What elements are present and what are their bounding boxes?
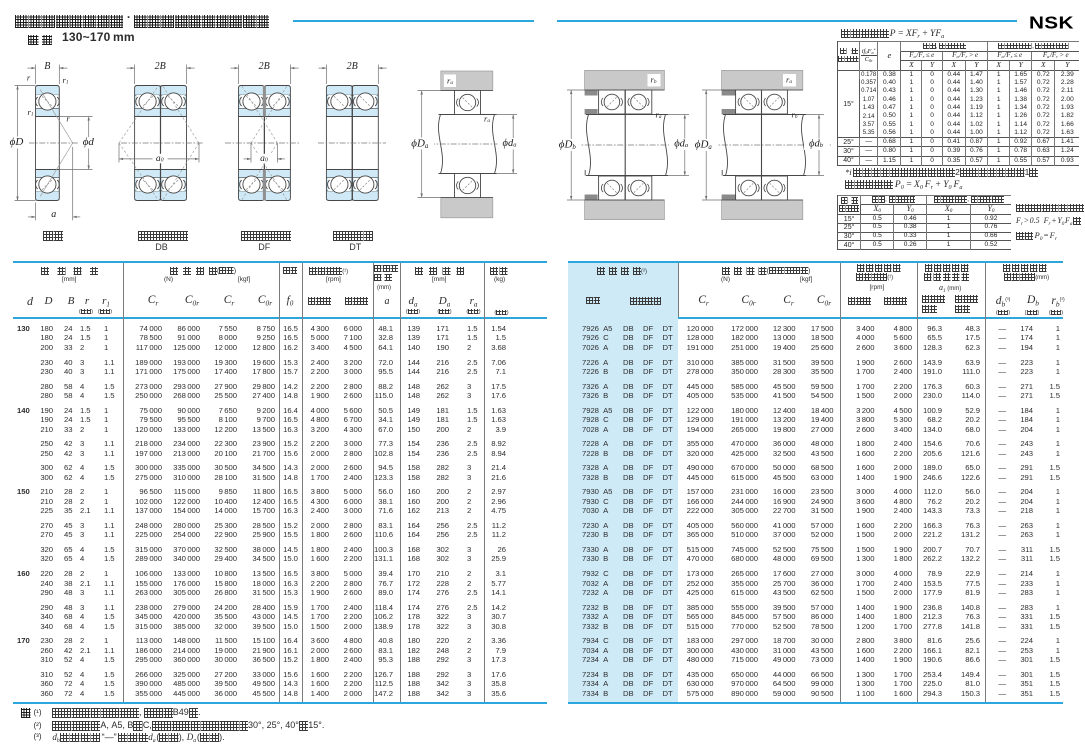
svg-text:B: B [44, 61, 50, 72]
svg-text:2B: 2B [347, 61, 358, 72]
svg-text:r: r [27, 72, 31, 82]
svg-text:r: r [66, 113, 70, 123]
svg-text:rb: rb [792, 109, 798, 120]
svg-text:r1: r1 [28, 107, 34, 118]
svg-text:a: a [51, 209, 56, 220]
svg-text:ra: ra [656, 109, 662, 120]
svg-text:2B: 2B [259, 61, 270, 72]
svg-text:2B: 2B [155, 61, 166, 72]
svg-text:r1: r1 [63, 75, 69, 86]
svg-text:ϕD: ϕD [10, 136, 24, 148]
svg-text:ϕd: ϕd [83, 136, 95, 148]
